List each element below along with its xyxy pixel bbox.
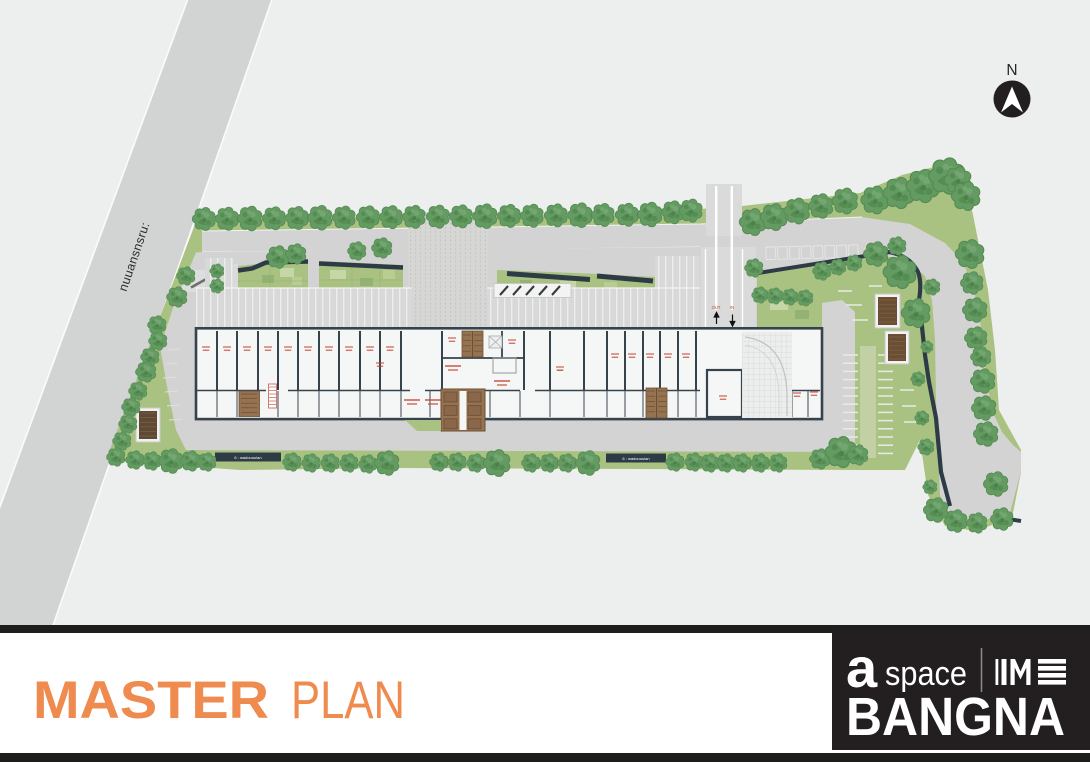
svg-text:OUT: OUT <box>712 305 721 310</box>
svg-text:N: N <box>1006 62 1017 79</box>
svg-text:6 : wadouuulan: 6 : wadouuulan <box>622 456 649 461</box>
svg-text:IN: IN <box>730 305 734 310</box>
svg-text:PLAN: PLAN <box>291 671 405 730</box>
svg-text:BANGNA: BANGNA <box>846 687 1065 747</box>
svg-text:6 : wadouuulan: 6 : wadouuulan <box>234 455 261 460</box>
svg-text:MASTER: MASTER <box>33 671 269 730</box>
